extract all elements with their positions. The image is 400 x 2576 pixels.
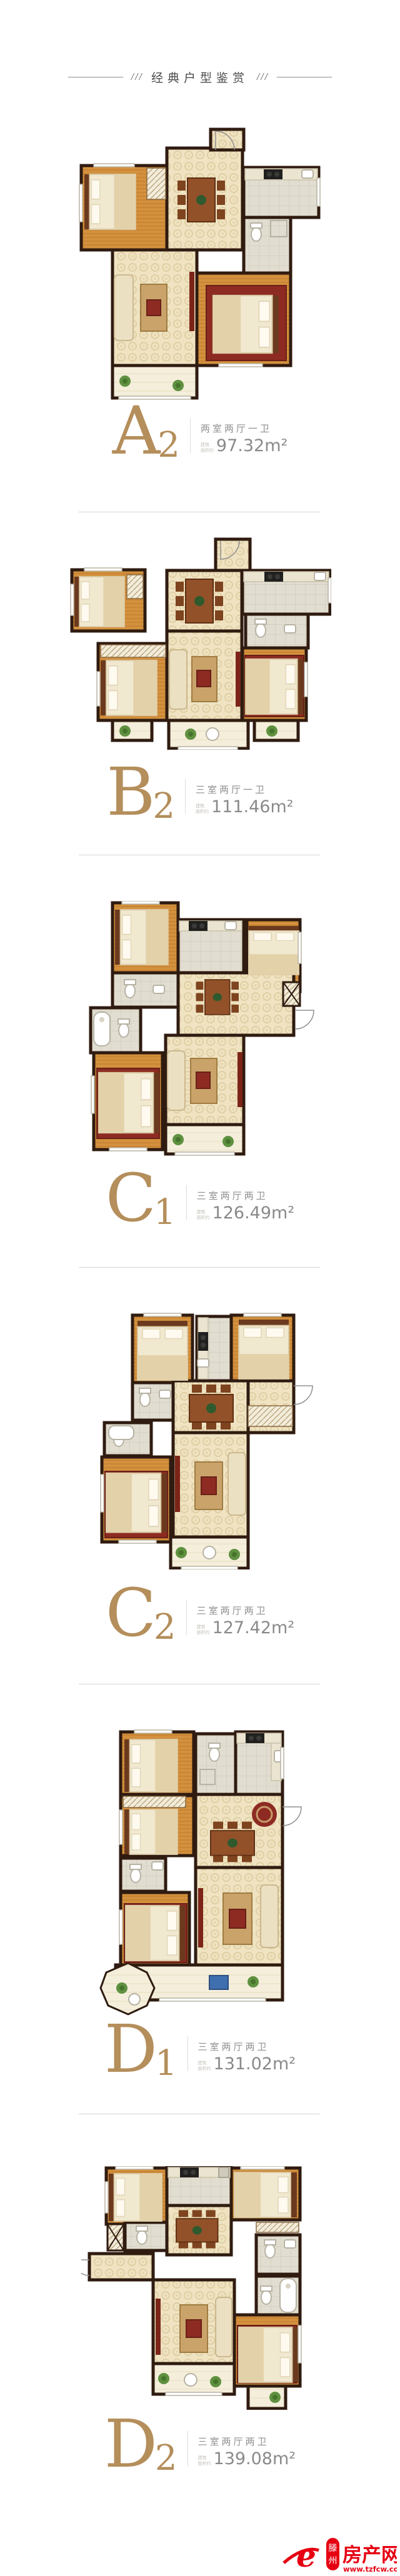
floorplan-a2-image <box>59 116 341 403</box>
site-watermark-logo: e 滕 州 房产网 www.tzfcw.com.cn <box>281 2534 397 2574</box>
plan-letter: D <box>104 2419 157 2470</box>
plan-layout-text: 三室两厅两卫 <box>197 1189 295 1202</box>
area-prefix: 建筑面积约 <box>197 1624 210 1636</box>
header-line-left <box>68 77 123 77</box>
plan-digit: 1 <box>154 1202 176 1224</box>
plan-layout-text: 三室两厅一卫 <box>196 783 294 796</box>
plan-letter: C <box>106 1173 156 1224</box>
plan-letter: A <box>112 406 161 457</box>
floorplan-c1-image <box>81 901 325 1157</box>
plan-code-d2: D 2 <box>104 2419 177 2470</box>
page-title: 经典户型鉴赏 <box>151 69 249 86</box>
plan-digit: 2 <box>154 1617 176 1639</box>
plan-label-a2: A 2 两室两厅一卫 建筑面积约 97.32m² <box>0 406 400 457</box>
plan-area: 139.08m² <box>214 2451 296 2467</box>
page-header: /// 经典户型鉴赏 /// <box>0 69 400 86</box>
label-divider <box>186 1600 187 1635</box>
plan-digit: 2 <box>155 2448 177 2470</box>
plan-code-d1: D 1 <box>104 2024 177 2075</box>
section-separator <box>79 855 320 855</box>
plan-digit: 2 <box>157 435 180 457</box>
plan-letter: D <box>104 2024 157 2075</box>
plan-label-c2: C 2 三室两厅两卫 建筑面积约 127.42m² <box>0 1588 400 1639</box>
section-separator <box>79 512 320 512</box>
header-line-right <box>277 77 332 77</box>
floorplan-d2-image <box>81 2166 309 2410</box>
plan-digit: 1 <box>155 2053 177 2075</box>
plan-code-c1: C 1 <box>106 1173 176 1224</box>
logo-site-url: www.tzfcw.com.cn <box>343 2565 397 2574</box>
plan-label-d2: D 2 三室两厅两卫 建筑面积约 139.08m² <box>0 2419 400 2470</box>
area-prefix: 建筑面积约 <box>198 2061 211 2072</box>
label-divider <box>186 1185 187 1220</box>
logo-city-char1: 滕 <box>329 2544 337 2554</box>
label-divider <box>187 2036 188 2071</box>
plan-code-a2: A 2 <box>112 406 180 457</box>
plan-area: 131.02m² <box>214 2056 296 2072</box>
plan-code-c2: C 2 <box>106 1588 176 1639</box>
plan-layout-text: 三室两厅两卫 <box>198 2435 296 2448</box>
area-prefix: 建筑面积约 <box>196 803 209 815</box>
area-prefix: 建筑面积约 <box>201 442 214 454</box>
plan-letter: B <box>106 767 155 818</box>
plan-label-c1: C 1 三室两厅两卫 建筑面积约 126.49m² <box>0 1173 400 1224</box>
header-decor-left: /// <box>131 72 143 82</box>
section-separator <box>79 1684 320 1684</box>
floorplan-b2-image <box>66 534 331 750</box>
header-decor-right: /// <box>257 72 269 82</box>
floorplan-c2-image <box>100 1312 319 1569</box>
floorplan-d1-image <box>97 1726 303 2016</box>
plan-layout-text: 三室两厅两卫 <box>197 1604 295 1617</box>
plan-area: 111.46m² <box>211 799 294 815</box>
plan-area: 127.42m² <box>212 1620 295 1636</box>
section-separator <box>79 2114 320 2114</box>
logo-e-glyph: e <box>296 2537 316 2574</box>
plan-area: 97.32m² <box>216 438 287 454</box>
plan-label-b2: B 2 三室两厅一卫 建筑面积约 111.46m² <box>0 767 400 818</box>
area-prefix: 建筑面积约 <box>197 1210 210 1221</box>
article-page: /// 经典户型鉴赏 /// <box>0 0 400 2576</box>
logo-city-char2: 州 <box>329 2556 337 2566</box>
plan-code-b2: B 2 <box>106 767 175 818</box>
plan-layout-text: 三室两厅两卫 <box>198 2040 296 2053</box>
plan-digit: 2 <box>152 796 175 818</box>
label-divider <box>185 779 186 814</box>
plan-label-d1: D 1 三室两厅两卫 建筑面积约 131.02m² <box>0 2024 400 2075</box>
label-divider <box>190 418 191 453</box>
plan-layout-text: 两室两厅一卫 <box>201 422 287 435</box>
area-prefix: 建筑面积约 <box>198 2455 211 2467</box>
section-separator <box>79 1267 320 1268</box>
plan-area: 126.49m² <box>212 1205 295 1221</box>
plan-letter: C <box>106 1588 156 1639</box>
label-divider <box>187 2431 188 2466</box>
logo-site-name: 房产网 <box>342 2544 397 2567</box>
